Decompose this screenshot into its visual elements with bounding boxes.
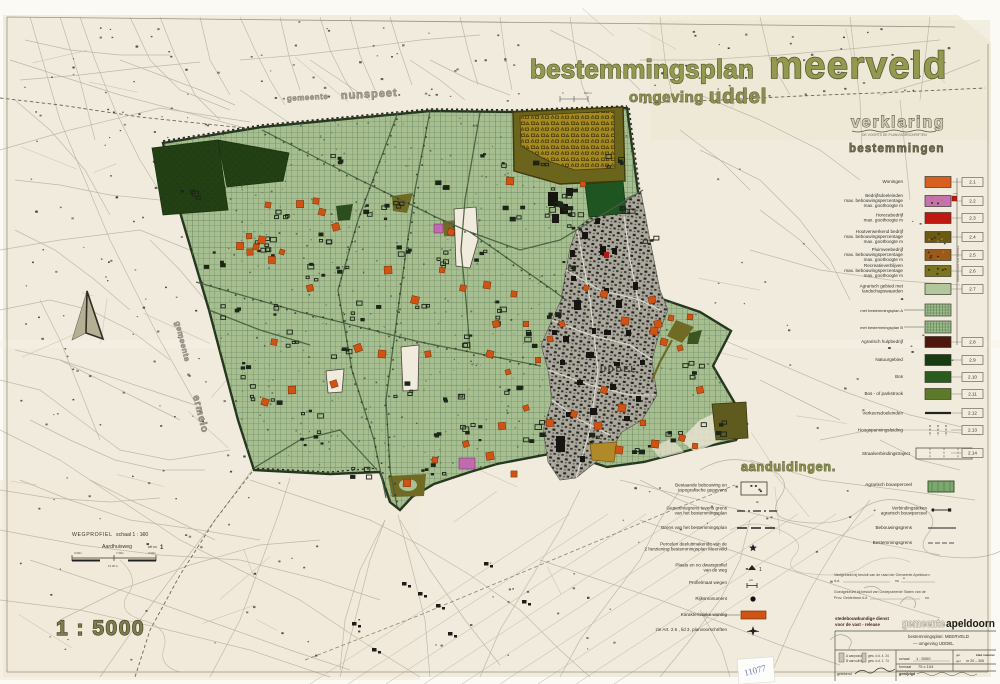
svg-text:Vastgesteld bij besluit van: Vastgesteld bij besluit van de raad der …	[834, 573, 930, 577]
svg-text:getekend: getekend	[837, 672, 852, 676]
svg-text:formaat: formaat	[899, 665, 911, 669]
svg-text:bestemmingsplan: bestemmingsplan	[530, 54, 754, 84]
svg-text:meerveld: meerveld	[769, 45, 948, 87]
svg-text:1 : 5000: 1 : 5000	[56, 617, 145, 640]
svg-text:gemeente: gemeente	[902, 618, 945, 630]
svg-text:2.2: 2.2	[969, 199, 976, 204]
svg-text:2.6: 2.6	[969, 269, 976, 274]
svg-text:max. goothoogte m: max. goothoogte m	[864, 203, 903, 208]
svg-text:2.8: 2.8	[969, 340, 976, 345]
svg-text:met bestemmingsplan B: met bestemmingsplan B	[860, 325, 903, 330]
svg-text:Rijksmonument: Rijksmonument	[695, 596, 727, 601]
svg-text:7.00m: 7.00m	[116, 551, 124, 555]
svg-text:max. goothoogte m: max. goothoogte m	[864, 273, 903, 278]
svg-text:2 herziening bestemmingsplan: 2 herziening bestemmingsplan Meerveld	[645, 547, 728, 552]
svg-text:zie Art. 2.5 , lid 3, planvoor: zie Art. 2.5 , lid 3, planvoorschriften	[656, 627, 728, 632]
svg-text:2.4: 2.4	[969, 235, 976, 240]
svg-text:topografische gegevens: topografische gegevens	[678, 488, 727, 493]
svg-text:Goedgekeurd bij besluit van: Goedgekeurd bij besluit van Gedeputeerde…	[834, 590, 926, 594]
svg-text:2.10: 2.10	[968, 375, 977, 380]
svg-text:2.5: 2.5	[969, 253, 976, 258]
svg-text:Agrarisch bouwperceel: Agrarisch bouwperceel	[865, 482, 912, 487]
svg-text:stedebouwkundige dienst: stedebouwkundige dienst	[835, 616, 889, 621]
svg-text:1: 1	[759, 567, 762, 573]
svg-text:Agrarisch hulpbedrijf: Agrarisch hulpbedrijf	[861, 339, 904, 344]
svg-text:get: get	[956, 653, 960, 657]
svg-text:75 x 104: 75 x 104	[918, 664, 934, 669]
svg-text:aanduidingen.: aanduidingen.	[741, 460, 836, 474]
svg-text:2.1: 2.1	[969, 180, 976, 185]
svg-text:2.7: 2.7	[969, 287, 976, 292]
svg-text:d.d.: d.d.	[834, 579, 840, 583]
svg-text:gew. d.d. 4. 24: gew. d.d. 4. 24	[868, 654, 889, 658]
svg-text:UDDEL: UDDEL	[600, 364, 637, 374]
svg-text:2.9: 2.9	[969, 358, 976, 363]
svg-text:van de weg: van de weg	[704, 568, 728, 573]
svg-text:Prov. Gelderland d.d.: Prov. Gelderland d.d.	[834, 596, 868, 600]
svg-text:a.b: a.b	[749, 578, 754, 582]
svg-text:schaal 1 : 100: schaal 1 : 100	[116, 532, 148, 538]
svg-text:no: no	[925, 596, 929, 600]
svg-text:Straalverbindingstraject: Straalverbindingstraject	[862, 451, 911, 456]
svg-text:Hoogspanningsleiding: Hoogspanningsleiding	[858, 428, 904, 433]
svg-text:VOORSCHRIFTEN ARTIKEL: VOORSCHRIFTEN ARTIKEL	[956, 245, 960, 282]
svg-text:Bebouwingsgrens: Bebouwingsgrens	[875, 525, 912, 530]
svg-text:max. goothoogte m: max. goothoogte m	[864, 257, 903, 262]
svg-text:2.3: 2.3	[969, 216, 976, 221]
svg-text:Woningen: Woningen	[882, 179, 903, 184]
svg-text:2.13: 2.13	[968, 428, 977, 433]
svg-text:Grens van het bestemmingsplan: Grens van het bestemmingsplan	[661, 525, 728, 530]
svg-text:DE VOORTS DE PLANVOORSCHRIFTEN: DE VOORTS DE PLANVOORSCHRIFTEN	[862, 133, 927, 137]
svg-text:blad nummer: blad nummer	[976, 653, 996, 657]
svg-text:Bestemmingsgrens: Bestemmingsgrens	[873, 540, 913, 545]
svg-text:2.12: 2.12	[968, 411, 977, 416]
svg-text:gewijzigd: gewijzigd	[899, 672, 915, 676]
svg-text:2.14: 2.14	[968, 451, 977, 456]
svg-text:wit no: wit no	[148, 545, 157, 549]
svg-text:met bestemmingsplan A: met bestemmingsplan A	[860, 308, 903, 313]
svg-text:bestemmingsplan: MEERVELD: bestemmingsplan: MEERVELD	[908, 634, 969, 639]
svg-text:13.00 m: 13.00 m	[108, 564, 119, 568]
svg-text:verklaring: verklaring	[851, 114, 945, 131]
svg-text:3.00m: 3.00m	[148, 551, 156, 555]
svg-text:rood: rood	[953, 192, 958, 195]
svg-text:no: no	[895, 579, 899, 583]
svg-text:bestemmingen: bestemmingen	[849, 143, 945, 155]
svg-text:uddel: uddel	[709, 86, 767, 108]
svg-text:omgeving: omgeving	[629, 89, 704, 106]
svg-text:nr 20 – 306: nr 20 – 306	[966, 659, 984, 663]
svg-text:gew. d.d. 1. 74: gew. d.d. 1. 74	[868, 659, 889, 663]
svg-text:max. goothoogte m: max. goothoogte m	[864, 217, 903, 222]
svg-text:voor de vast - release: voor de vast - release	[835, 622, 880, 627]
svg-text:200 m: 200 m	[584, 91, 592, 95]
svg-text:WEGPROFIEL: WEGPROFIEL	[72, 532, 113, 538]
svg-text:1 : 5000: 1 : 5000	[916, 656, 931, 661]
svg-text:agrarisch bouwperceel: agrarisch bouwperceel	[881, 511, 927, 516]
svg-text:Profielmaat wegen: Profielmaat wegen	[689, 580, 727, 585]
svg-text:gez: gez	[956, 659, 961, 663]
svg-text:landschapswaarden: landschapswaarden	[862, 288, 903, 293]
svg-text:B aanvulling: B aanvulling	[846, 659, 864, 663]
svg-text:Karakteristieke woning: Karakteristieke woning	[681, 612, 728, 617]
svg-text:3.00m: 3.00m	[74, 551, 82, 555]
svg-text:schaal: schaal	[899, 657, 910, 661]
svg-text:Verkeersdoeleinden: Verkeersdoeleinden	[862, 411, 903, 416]
svg-text:— omgeving UDDEL: — omgeving UDDEL	[913, 641, 954, 646]
svg-text:apeldoorn: apeldoorn	[946, 618, 995, 630]
svg-text:Bos: Bos	[895, 374, 904, 379]
svg-text:Natuurgebied: Natuurgebied	[875, 357, 903, 362]
svg-text:van het bestemmingsplan: van het bestemmingsplan	[675, 511, 728, 516]
svg-text:max. goothoogte m: max. goothoogte m	[864, 239, 903, 244]
svg-text:Aardhuisweg: Aardhuisweg	[102, 544, 132, 550]
svg-text:Bos - of parkstrook: Bos - of parkstrook	[864, 391, 903, 396]
svg-text:2.11: 2.11	[968, 392, 977, 397]
